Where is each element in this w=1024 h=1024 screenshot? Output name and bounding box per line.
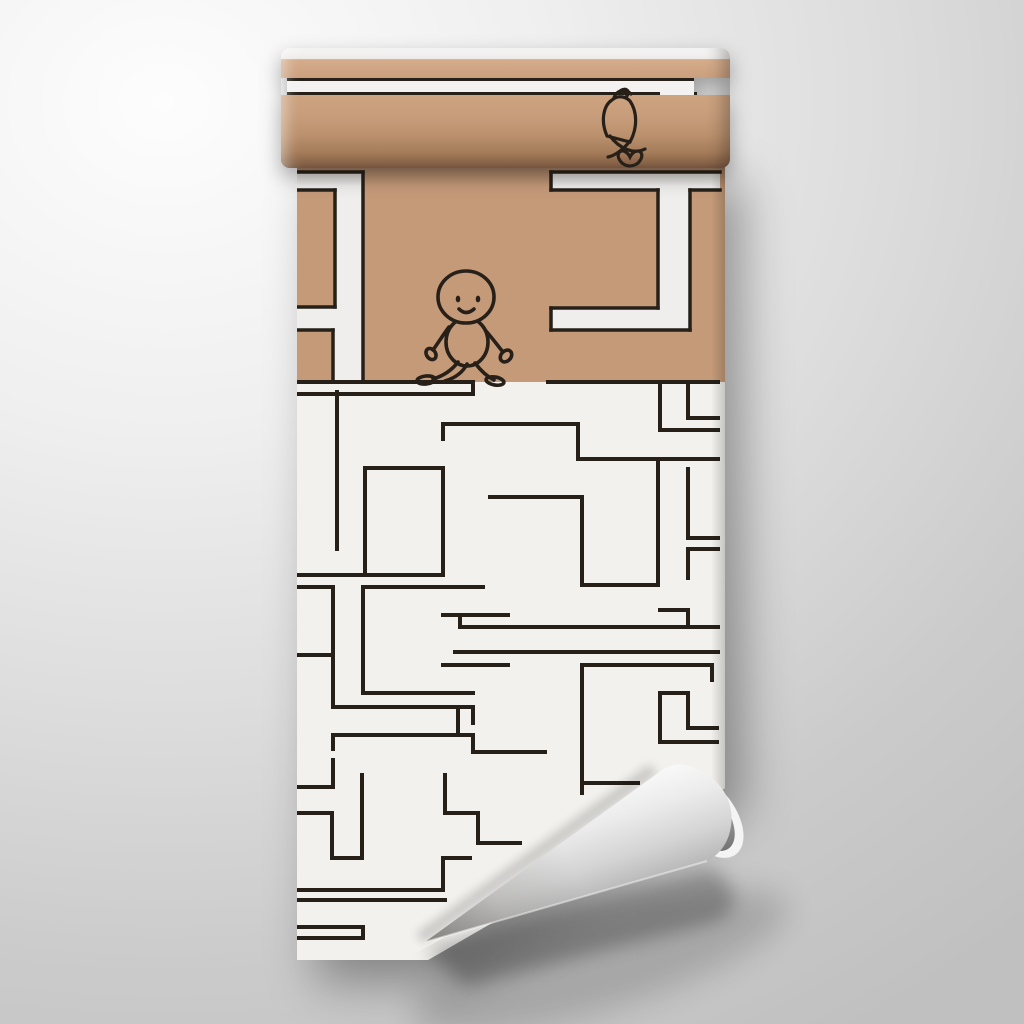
page-curl bbox=[355, 690, 825, 1024]
figure-body bbox=[446, 318, 488, 366]
doodle-stroke bbox=[603, 97, 635, 142]
page-curl-svg bbox=[355, 690, 825, 1024]
figure-head bbox=[438, 271, 494, 323]
doodle-figure-illustration bbox=[585, 85, 685, 185]
doodle-stroke bbox=[618, 151, 642, 166]
background-wall bbox=[0, 0, 1024, 1024]
doodle-strokes bbox=[603, 89, 645, 166]
figure-eye bbox=[456, 296, 461, 303]
figure-eye bbox=[476, 296, 481, 303]
